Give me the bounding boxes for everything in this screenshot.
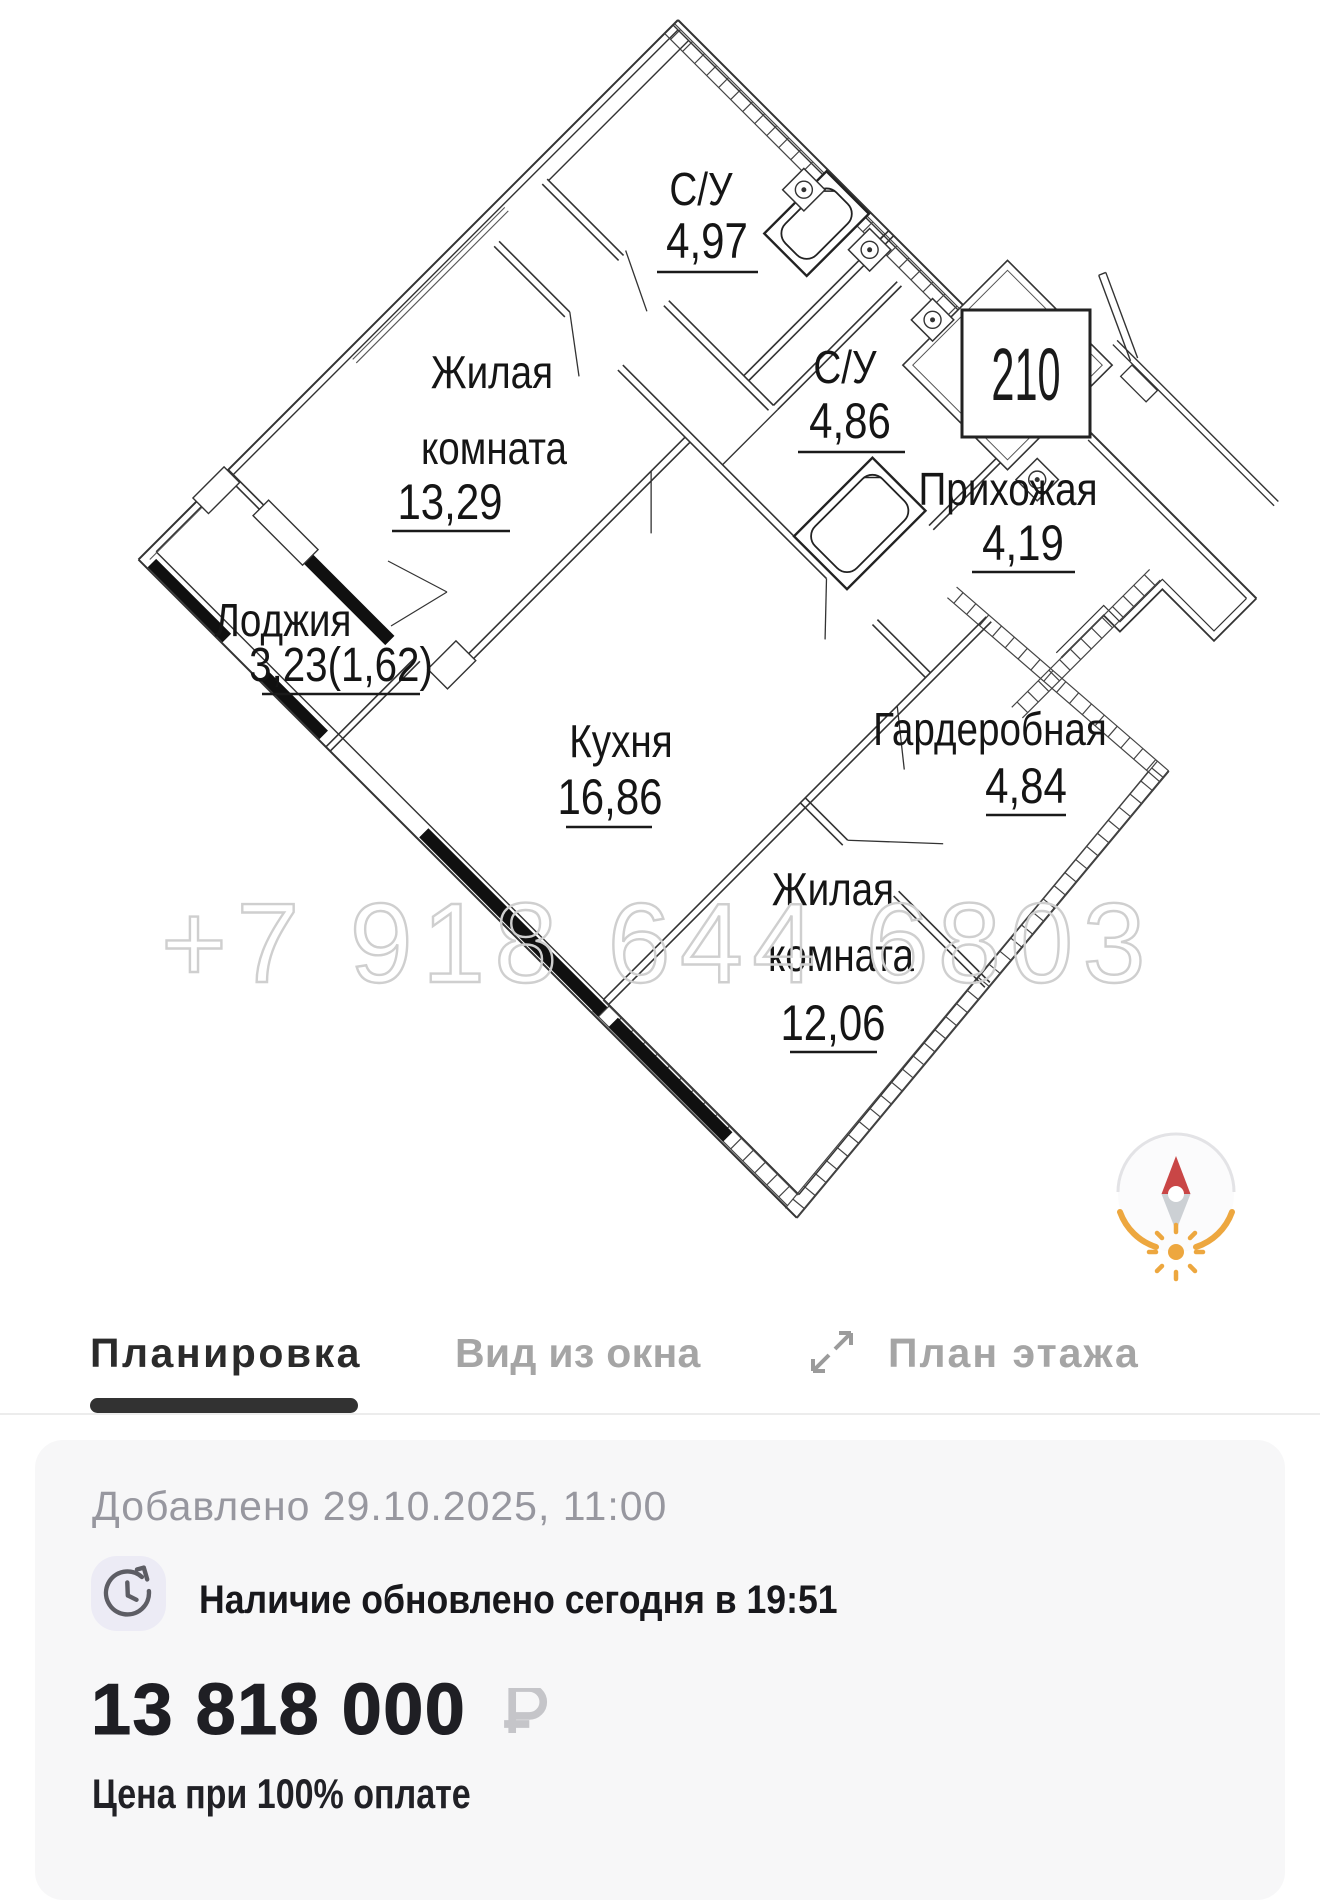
- svg-text:С/У: С/У: [669, 164, 733, 215]
- svg-text:4,86: 4,86: [809, 393, 891, 449]
- svg-text:Прихожая: Прихожая: [918, 464, 1097, 515]
- svg-text:3,23(1,62): 3,23(1,62): [249, 639, 433, 692]
- svg-text:Жилая: Жилая: [431, 347, 553, 398]
- svg-text:С/У: С/У: [813, 342, 877, 393]
- svg-text:Кухня: Кухня: [569, 716, 672, 767]
- svg-text:4,84: 4,84: [985, 758, 1067, 814]
- svg-text:комната: комната: [421, 423, 567, 474]
- svg-text:16,86: 16,86: [557, 769, 662, 825]
- svg-text:Гардеробная: Гардеробная: [873, 704, 1107, 755]
- svg-text:4,19: 4,19: [982, 515, 1064, 571]
- svg-text:210: 210: [991, 333, 1060, 416]
- svg-text:+7 918 644 6803: +7 918 644 6803: [161, 880, 1155, 1006]
- svg-text:4,97: 4,97: [666, 213, 748, 269]
- svg-text:13,29: 13,29: [397, 474, 502, 530]
